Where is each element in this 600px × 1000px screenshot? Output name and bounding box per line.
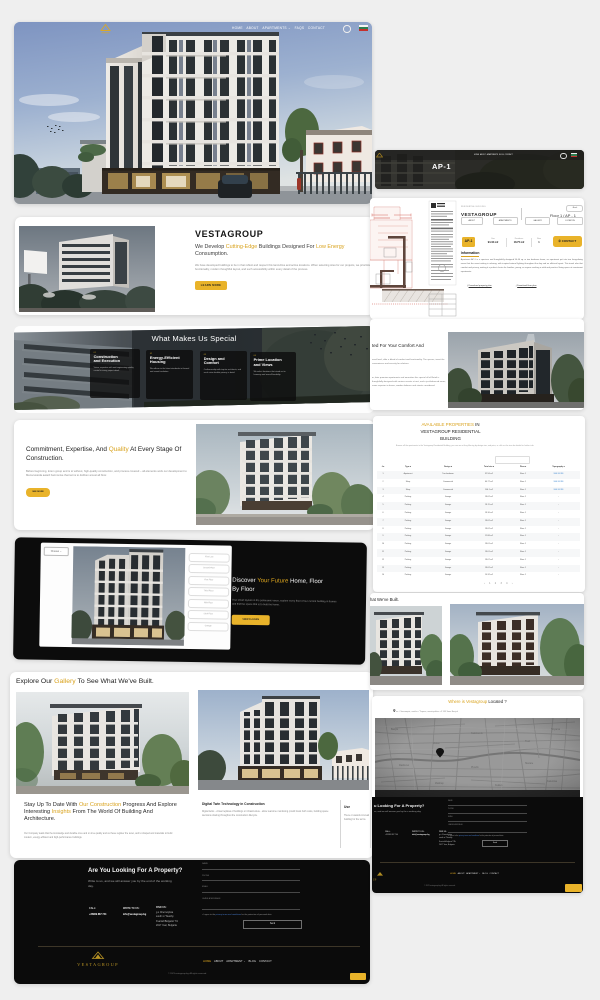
svg-text:VESTAGROUP: VESTAGROUP bbox=[77, 962, 119, 967]
svg-text:UP: UP bbox=[373, 879, 377, 882]
